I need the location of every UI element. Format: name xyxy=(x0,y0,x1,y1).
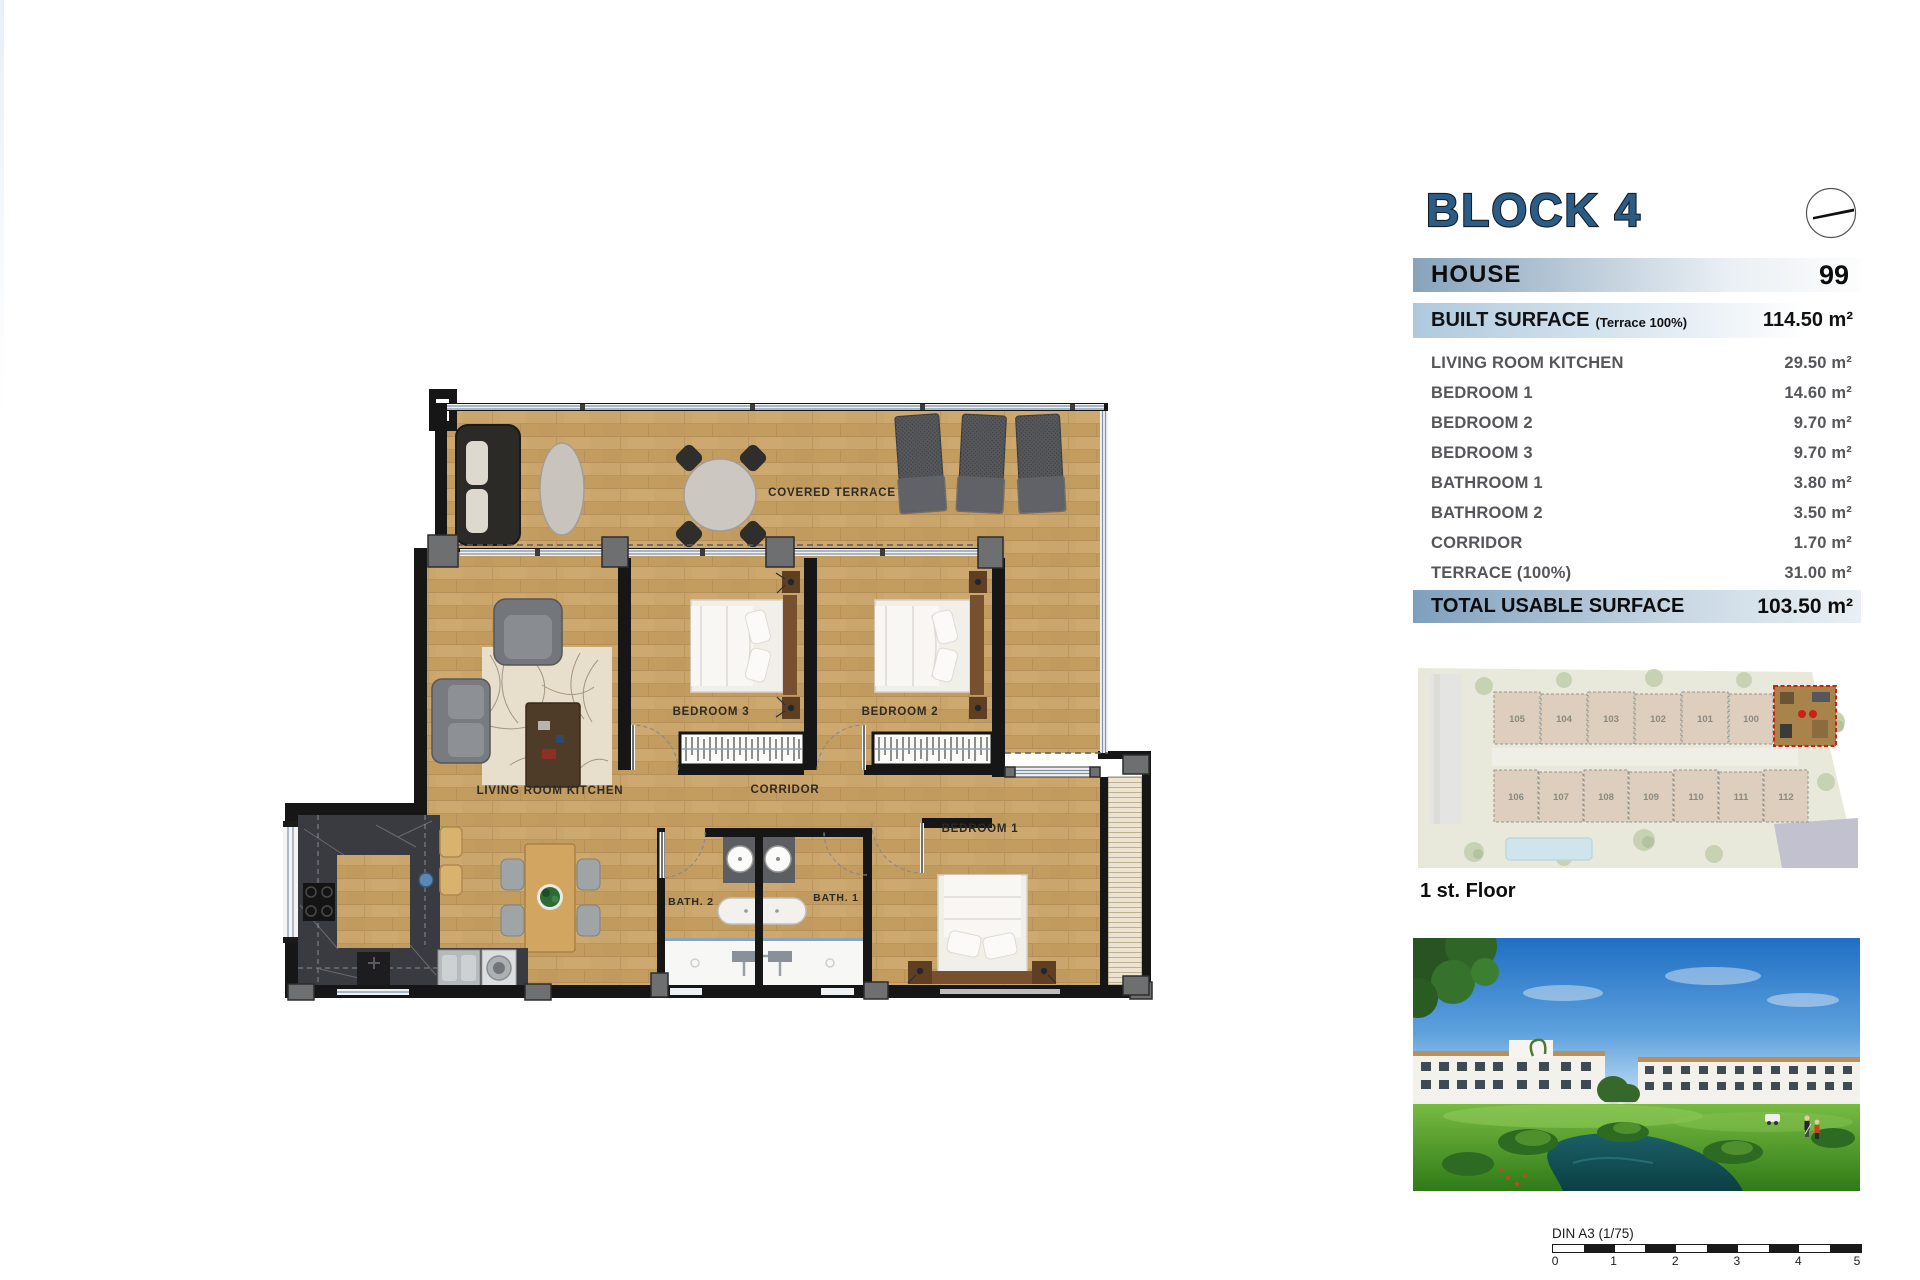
block-title: BLOCK 4 xyxy=(1426,183,1642,237)
site-plan: 105 104 103 102 101 100 106 107 108 109 … xyxy=(1414,662,1858,880)
window-kitchen xyxy=(283,821,298,943)
row-label: BEDROOM 3 xyxy=(1413,444,1533,463)
row-label: CORRIDOR xyxy=(1413,534,1522,553)
scale-tick: 2 xyxy=(1672,1254,1679,1268)
built-surface-value: 114.50 m² xyxy=(1763,309,1861,332)
scale-tick: 4 xyxy=(1795,1254,1802,1268)
site-unit-number: 111 xyxy=(1734,792,1750,803)
row-value: 31.00 m² xyxy=(1784,564,1861,583)
page-edge-shadow xyxy=(0,0,4,420)
scale-tick: 3 xyxy=(1733,1254,1740,1268)
sun-loungers xyxy=(893,413,1067,514)
showers xyxy=(665,938,863,985)
row-label: BATHROOM 2 xyxy=(1413,504,1543,523)
row-value: 1.70 m² xyxy=(1794,534,1861,553)
built-surface-label: BUILT SURFACE xyxy=(1413,309,1590,332)
table-row: BEDROOM 1 14.60 m² xyxy=(1413,378,1861,408)
kitchen-faucet xyxy=(419,873,433,887)
living-room-kitchen-label: LIVING ROOM KITCHEN xyxy=(477,785,624,797)
site-unit-number: 102 xyxy=(1650,714,1666,725)
highlighted-unit xyxy=(1774,686,1836,746)
table-row: LIVING ROOM KITCHEN 29.50 m² xyxy=(1413,348,1861,378)
bedroom3-label: BEDROOM 3 xyxy=(673,706,750,718)
site-unit-number: 110 xyxy=(1688,792,1703,803)
sofa xyxy=(432,679,490,763)
row-label: LIVING ROOM KITCHEN xyxy=(1413,354,1624,373)
armchair xyxy=(494,599,562,665)
row-label: BEDROOM 2 xyxy=(1413,414,1533,433)
row-value: 14.60 m² xyxy=(1784,384,1861,403)
washing-machine xyxy=(482,950,516,986)
table-row: BEDROOM 3 9.70 m² xyxy=(1413,438,1861,468)
table-row: BATHROOM 1 3.80 m² xyxy=(1413,468,1861,498)
table-row: TERRACE (100%) 31.00 m² xyxy=(1413,558,1861,588)
scale-bar: DIN A3 (1/75) 0 1 2 3 4 5 xyxy=(1552,1226,1862,1268)
scale-ruler xyxy=(1552,1244,1862,1253)
bar-stool xyxy=(440,827,462,857)
site-unit-number: 108 xyxy=(1598,792,1614,803)
page: COVERED TERRACE LIVING ROOM KITCHEN BEDR… xyxy=(0,0,1920,1280)
row-value: 9.70 m² xyxy=(1794,414,1861,433)
bath2-label: BATH. 2 xyxy=(668,896,714,908)
table-row: BATHROOM 2 3.50 m² xyxy=(1413,498,1861,528)
scale-tick: 0 xyxy=(1552,1254,1559,1268)
row-label: TERRACE (100%) xyxy=(1413,564,1571,583)
house-number: 99 xyxy=(1819,260,1861,291)
site-unit-number: 104 xyxy=(1556,714,1573,725)
terrace-sofa xyxy=(456,425,520,545)
coffee-table xyxy=(526,703,580,787)
site-unit-number: 103 xyxy=(1603,714,1619,725)
row-label: BATHROOM 1 xyxy=(1413,474,1543,493)
house-bar: HOUSE 99 xyxy=(1413,258,1861,292)
building-photo xyxy=(1413,938,1860,1191)
steel-sink xyxy=(438,950,480,986)
built-surface-bar: BUILT SURFACE (Terrace 100%) 114.50 m² xyxy=(1413,303,1861,338)
window-top xyxy=(447,404,1104,410)
bedroom3-furniture xyxy=(680,571,804,765)
site-unit-number: 105 xyxy=(1509,714,1526,725)
scale-tick: 1 xyxy=(1610,1254,1617,1268)
site-unit-number: 106 xyxy=(1508,792,1524,803)
total-surface-bar: TOTAL USABLE SURFACE 103.50 m² xyxy=(1413,590,1861,623)
table-row: CORRIDOR 1.70 m² xyxy=(1413,528,1861,558)
site-unit-number: 112 xyxy=(1778,792,1793,803)
bar-stool xyxy=(440,865,462,895)
row-value: 3.80 m² xyxy=(1794,474,1861,493)
floor-plan: COVERED TERRACE LIVING ROOM KITCHEN BEDR… xyxy=(280,385,1170,1020)
built-surface-note: (Terrace 100%) xyxy=(1590,312,1688,330)
corridor-label: CORRIDOR xyxy=(750,784,819,796)
covered-terrace-label: COVERED TERRACE xyxy=(768,487,896,499)
wardrobe xyxy=(873,733,992,765)
window-bed1-top xyxy=(1005,767,1100,777)
site-unit-number: 101 xyxy=(1697,714,1714,725)
bath1-label: BATH. 1 xyxy=(813,892,859,904)
louver-terrace xyxy=(1108,777,1142,985)
row-value: 3.50 m² xyxy=(1794,504,1861,523)
total-surface-label: TOTAL USABLE SURFACE xyxy=(1413,595,1684,618)
site-unit-number: 100 xyxy=(1743,714,1759,725)
row-label: BEDROOM 1 xyxy=(1413,384,1533,403)
window-east xyxy=(1100,411,1108,753)
bedroom1-label: BEDROOM 1 xyxy=(942,823,1019,835)
scale-tick: 5 xyxy=(1854,1254,1861,1268)
terrace-coffee-table xyxy=(540,443,584,535)
window-divider xyxy=(460,549,980,556)
north-indicator-icon xyxy=(1804,186,1860,242)
scale-ticks: 0 1 2 3 4 5 xyxy=(1552,1254,1860,1268)
scale-label: DIN A3 (1/75) xyxy=(1552,1226,1862,1241)
house-label: HOUSE xyxy=(1413,261,1521,289)
row-value: 9.70 m² xyxy=(1794,444,1861,463)
bedroom2-furniture xyxy=(873,571,992,765)
bedroom2-label: BEDROOM 2 xyxy=(862,706,939,718)
floor-label: 1 st. Floor xyxy=(1420,880,1516,903)
surface-table: LIVING ROOM KITCHEN 29.50 m² BEDROOM 1 1… xyxy=(1413,348,1861,588)
table-row: BEDROOM 2 9.70 m² xyxy=(1413,408,1861,438)
total-surface-value: 103.50 m² xyxy=(1757,595,1861,619)
wardrobe xyxy=(680,733,804,765)
site-unit-number: 107 xyxy=(1553,792,1569,803)
site-unit-number: 109 xyxy=(1643,792,1659,803)
row-value: 29.50 m² xyxy=(1784,354,1861,373)
